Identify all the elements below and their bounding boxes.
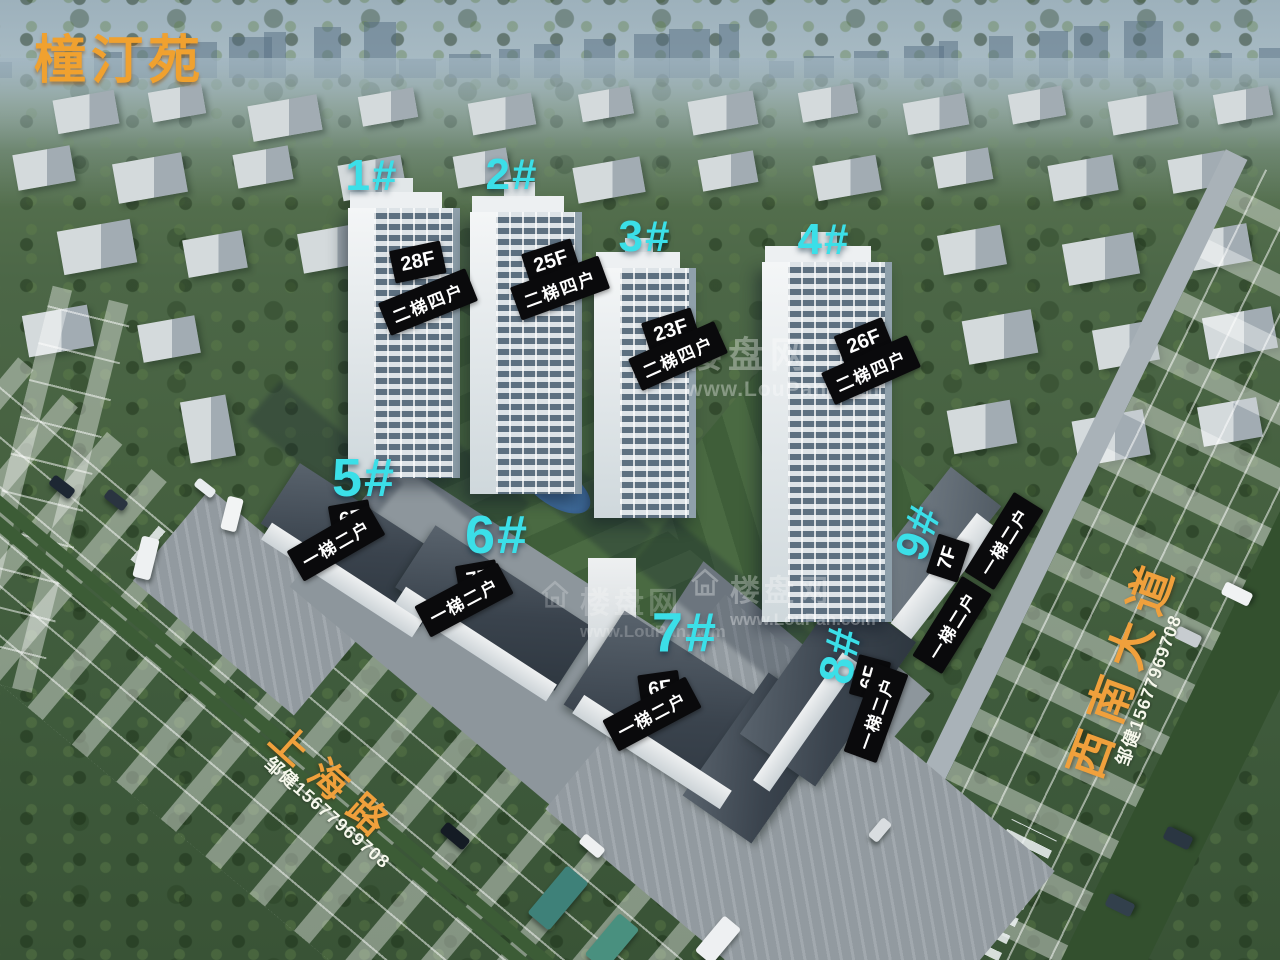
- tower-4: [762, 262, 892, 622]
- project-title: 橦汀苑: [34, 18, 205, 93]
- tower-gable: [594, 268, 620, 518]
- aerial-site-rendering: 楼盘网 www.LouPan.com 楼盘网 www.LouPan.com 楼盘…: [0, 0, 1280, 960]
- tower-facade: [788, 262, 892, 622]
- distant-building: [182, 230, 248, 278]
- tower-gable: [348, 208, 374, 478]
- tower-gable: [470, 212, 496, 494]
- building-3-number: 3#: [619, 212, 672, 262]
- building-6-number: 6#: [465, 504, 529, 566]
- tower-facade: [620, 268, 696, 518]
- building-7-number: 7#: [652, 600, 718, 665]
- building-2-number: 2#: [486, 150, 539, 200]
- tower-3: [594, 268, 696, 518]
- distant-building: [57, 219, 138, 275]
- building-1-number: 1#: [346, 151, 399, 201]
- distant-building: [947, 400, 1018, 454]
- distant-building: [137, 315, 201, 362]
- tower-gable: [762, 262, 788, 622]
- distant-building: [180, 394, 236, 463]
- building-4-number: 4#: [798, 215, 851, 265]
- distant-building: [962, 309, 1039, 364]
- distant-building: [1062, 232, 1140, 286]
- distant-building: [937, 225, 1007, 276]
